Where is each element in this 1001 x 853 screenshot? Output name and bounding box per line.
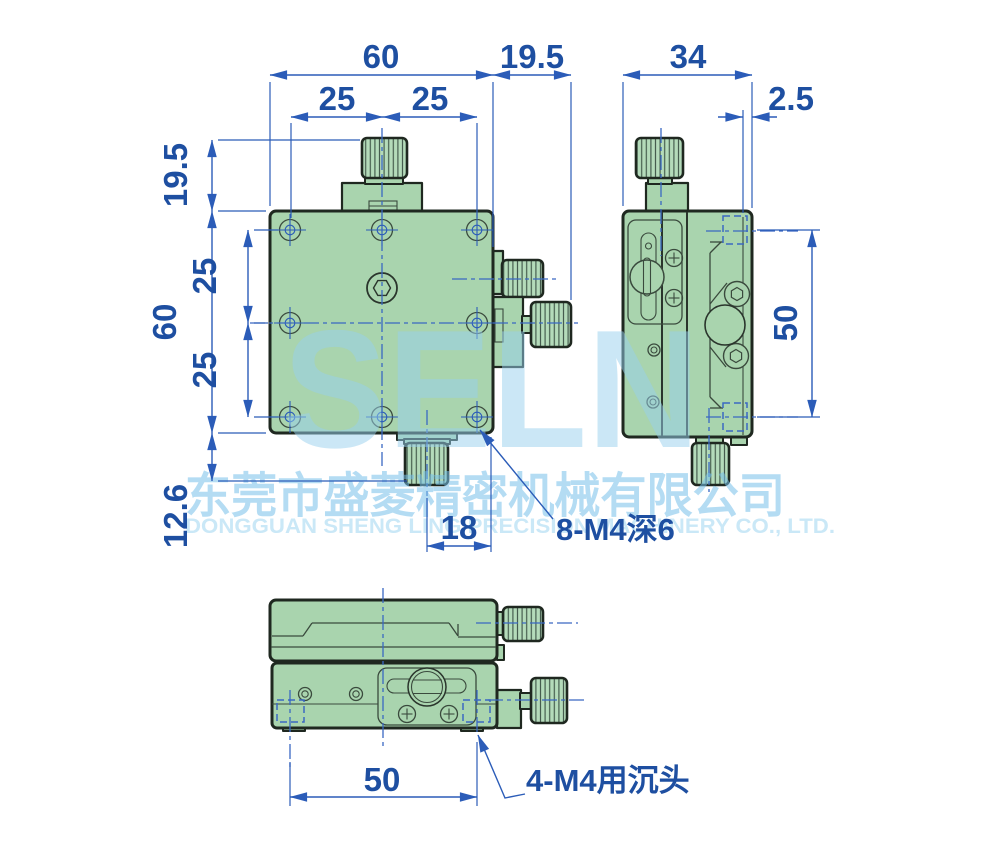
lock-screw bbox=[630, 260, 664, 294]
bottom-view bbox=[270, 588, 586, 770]
dim-front-overall-width: 60 bbox=[363, 38, 400, 75]
dim-side-overall-width: 34 bbox=[670, 38, 707, 75]
bottom-x-knob bbox=[496, 607, 543, 660]
dim-front-overall-height: 60 bbox=[146, 304, 183, 341]
dim-side-plate-offset: 2.5 bbox=[768, 80, 814, 117]
bottom-y-knob bbox=[497, 678, 567, 728]
side-top-knob bbox=[636, 138, 688, 211]
dim-side-hole-pitch: 50 bbox=[767, 305, 804, 342]
front-right-upper-knob bbox=[493, 251, 543, 297]
dim-front-hole-pitch-left-lower: 25 bbox=[186, 352, 223, 389]
label-counterbore-holes: 4-M4用沉头 bbox=[526, 763, 690, 798]
dim-front-knob-right-offset: 19.5 bbox=[500, 38, 564, 75]
stage-drawing: SELN 东莞市盛菱精密机械有限公司 DONGGUAN SHENG LING P… bbox=[0, 0, 1001, 853]
dim-front-hole-pitch-left-upper: 25 bbox=[186, 258, 223, 295]
dim-front-hole-pitch-top-left: 25 bbox=[319, 80, 356, 117]
dim-front-knob-top-height: 19.5 bbox=[157, 143, 194, 207]
leader-counterbore-holes bbox=[478, 735, 525, 798]
dim-bottom-hole-pitch: 50 bbox=[364, 761, 401, 798]
watermark-company-en: DONGGUAN SHENG LING PRECISION MACHINERY … bbox=[185, 515, 835, 538]
technical-drawing-page: SELN 东莞市盛菱精密机械有限公司 DONGGUAN SHENG LING P… bbox=[0, 0, 1001, 853]
dim-front-bottom-knob-offset: 18 bbox=[441, 509, 478, 546]
dim-front-hole-pitch-top-right: 25 bbox=[412, 80, 449, 117]
dim-front-bottom-knob-height: 12.6 bbox=[157, 484, 194, 548]
label-tapped-holes: 8-M4深6 bbox=[556, 512, 675, 547]
